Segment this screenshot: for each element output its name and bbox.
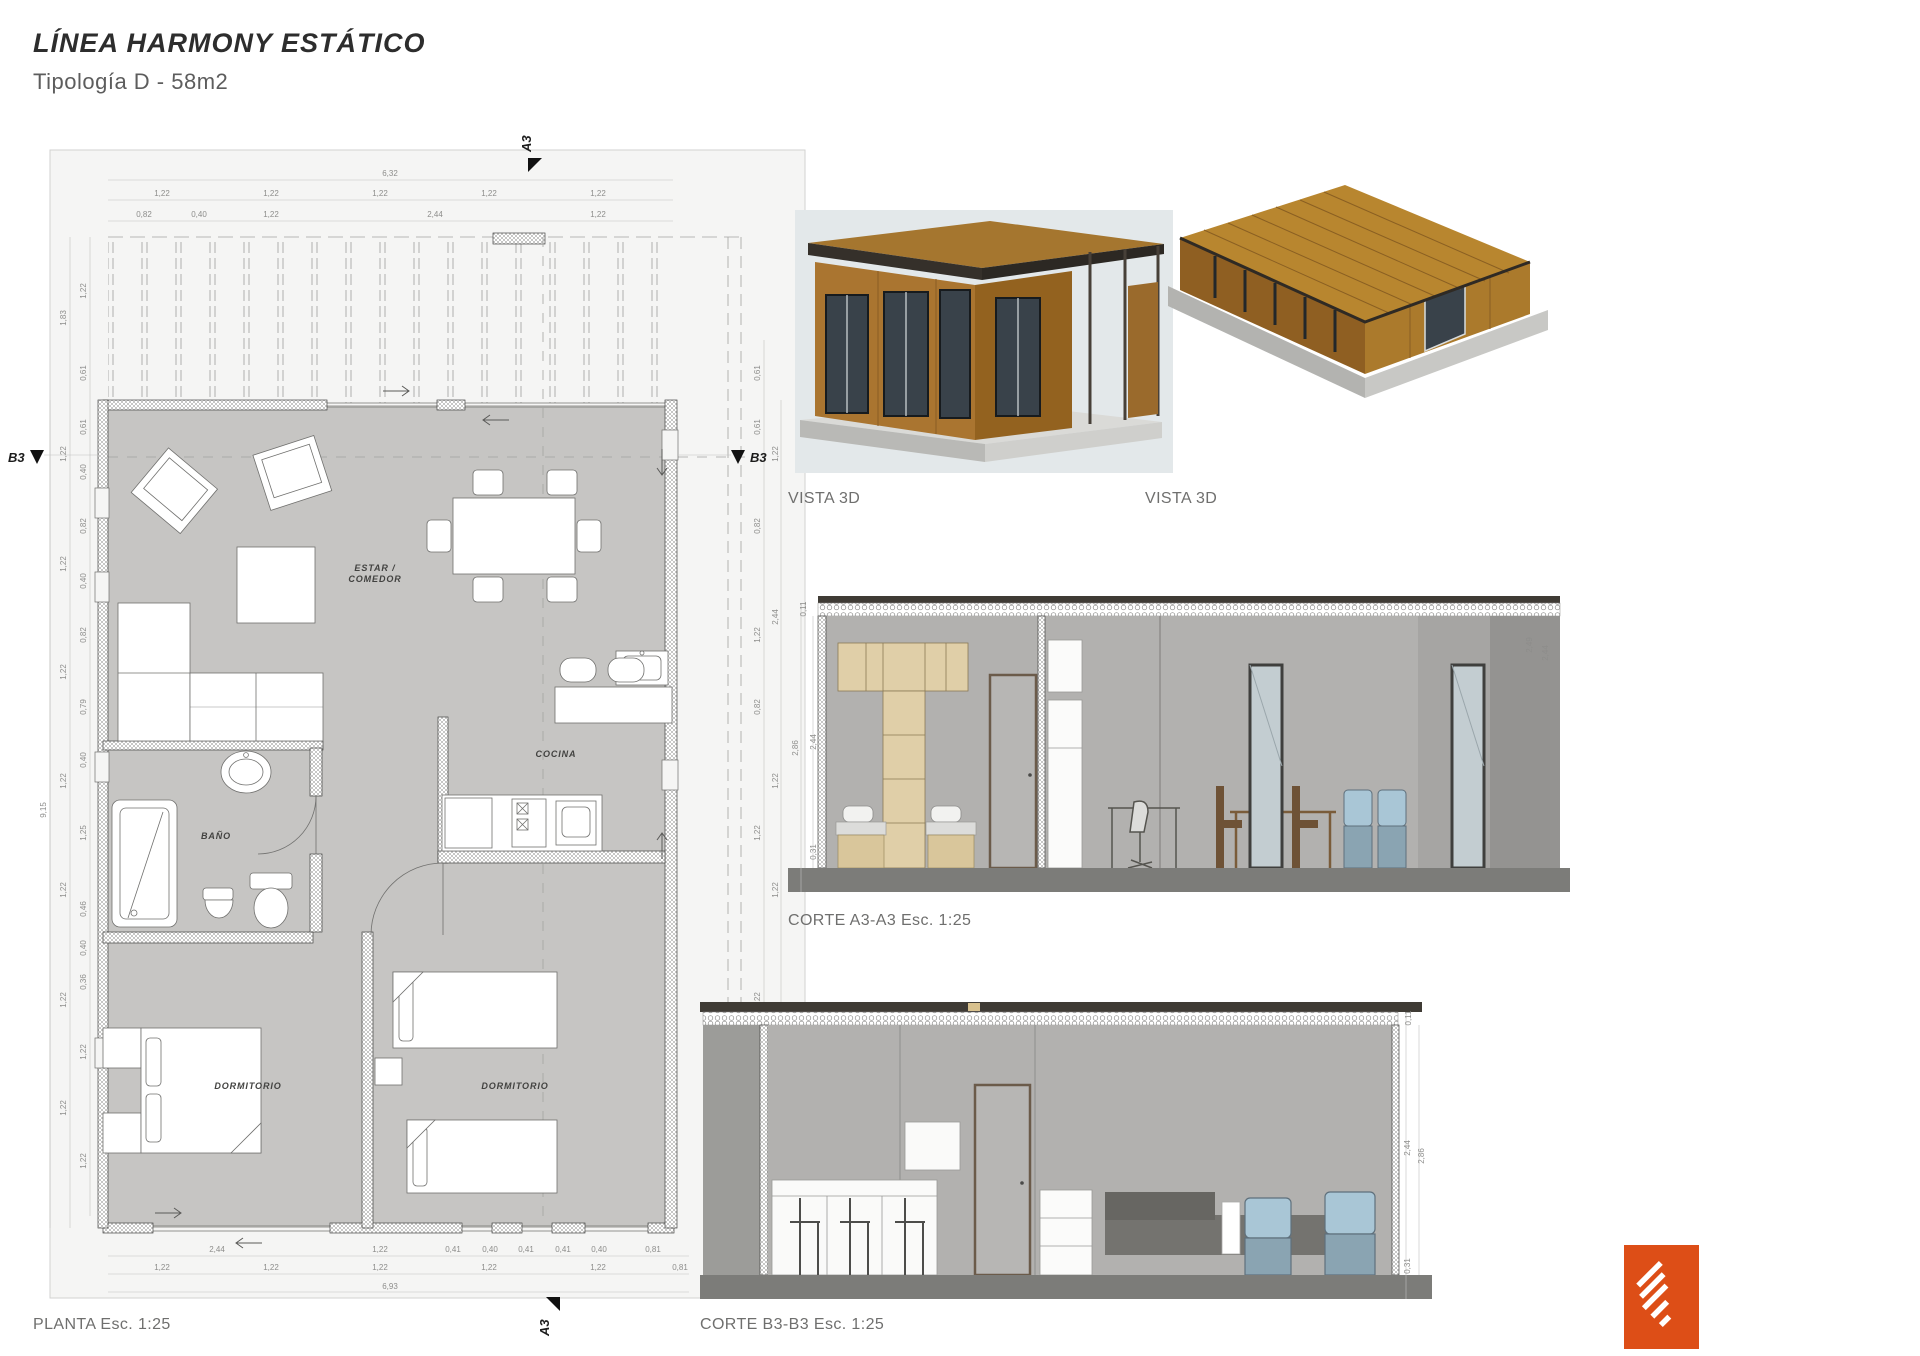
dim-label: 0,31 — [1403, 1258, 1412, 1274]
dim-label: 1,22 — [372, 1245, 388, 1254]
dim-label: 2,44 — [1541, 645, 1550, 661]
breakfast-bar — [555, 651, 672, 723]
dim-label: 0,36 — [79, 974, 88, 990]
bathroom-sink — [221, 751, 271, 793]
dim-label: 1,22 — [59, 1100, 68, 1116]
dim-label: 0,40 — [79, 464, 88, 480]
dim-label: 2,44 — [427, 210, 443, 219]
floor-slab — [700, 1275, 1432, 1299]
dim-label: 0,40 — [79, 573, 88, 589]
dim-label: 1,22 — [59, 446, 68, 462]
dim-label: 1,22 — [481, 1263, 497, 1272]
dim-label: 1,22 — [753, 627, 762, 643]
drawing-sheet-page: LÍNEA HARMONY ESTÁTICO Tipología D - 58m… — [0, 0, 1920, 1356]
logo-background — [1624, 1245, 1699, 1349]
floor-plan: ESTAR / COMEDOR COCINA BAÑO DORMITORIO D… — [8, 135, 805, 1337]
roof-slab — [700, 1002, 1422, 1012]
dim-label: 0,61 — [79, 365, 88, 381]
section-marker-a3-bottom: A3 — [537, 1297, 560, 1337]
dim-label: 1,22 — [372, 189, 388, 198]
dim-label: 1,25 — [79, 825, 88, 841]
dim-label: 2,86 — [791, 740, 800, 756]
dim-label: 1,22 — [79, 1153, 88, 1169]
drawing-canvas: ESTAR / COMEDOR COCINA BAÑO DORMITORIO D… — [0, 0, 1920, 1356]
dim-label: 0,61 — [753, 365, 762, 381]
dim-label: 2,86 — [1417, 1148, 1426, 1164]
room-label-bed1: DORMITORIO — [214, 1081, 281, 1091]
section-b3: 0,11 2,44 2,86 0,31 CORTE B3-B3 Esc. 1:2… — [700, 1002, 1432, 1333]
dim-label: 0,81 — [672, 1263, 688, 1272]
door-in-section — [975, 1085, 1030, 1275]
dim-label: 0,79 — [79, 699, 88, 715]
dim-label: 0,40 — [191, 210, 207, 219]
room-label-kitchen: COCINA — [536, 749, 577, 759]
single-bed — [393, 972, 557, 1048]
vista-3d-exterior: VISTA 3D — [788, 210, 1173, 507]
dim-label: 0,61 — [79, 419, 88, 435]
dim-label: 0,40 — [482, 1245, 498, 1254]
dim-label: 2,44 — [1403, 1140, 1412, 1156]
porch-wall — [703, 1025, 760, 1275]
door-in-section — [990, 675, 1036, 868]
roof-insulation — [818, 603, 1560, 616]
dim-label: 1,22 — [59, 664, 68, 680]
section-a3: 0,11 2,44 2,86 0,31 2,49 2,44 CORTE A3-A… — [788, 596, 1570, 929]
dim-label: 1,22 — [59, 882, 68, 898]
dim-label: 1,22 — [79, 1044, 88, 1060]
dim-label: 1,22 — [771, 446, 780, 462]
floor-slab — [788, 868, 1570, 892]
dim-label: 1,22 — [590, 210, 606, 219]
dim-label: 0,40 — [591, 1245, 607, 1254]
dim-label: 0,40 — [79, 940, 88, 956]
dim-label: 0,31 — [809, 844, 818, 860]
dim-label: 0,40 — [79, 752, 88, 768]
dim-label: 0,61 — [753, 419, 762, 435]
dim-label: 0,11 — [1404, 1010, 1413, 1026]
room-label-bed2: DORMITORIO — [481, 1081, 548, 1091]
section-arrow-icon — [546, 1297, 560, 1311]
dim-label: 1,22 — [771, 773, 780, 789]
dim-label: 0,82 — [753, 699, 762, 715]
dim-label: 2,44 — [209, 1245, 225, 1254]
dim-label: 1,22 — [79, 283, 88, 299]
vista1-caption: VISTA 3D — [788, 490, 860, 507]
section-b3-caption: CORTE B3-B3 Esc. 1:25 — [700, 1316, 884, 1333]
dim-label: 1,22 — [590, 189, 606, 198]
plan-caption: PLANTA Esc. 1:25 — [33, 1316, 171, 1333]
vista2-caption: VISTA 3D — [1145, 490, 1217, 507]
dim-label: 2,49 — [1525, 637, 1534, 653]
dim-label: 1,22 — [154, 1263, 170, 1272]
dim-label: 1,22 — [154, 189, 170, 198]
dim-label: 0,41 — [555, 1245, 571, 1254]
dim-label: 0,41 — [445, 1245, 461, 1254]
dim-label: 0,82 — [79, 518, 88, 534]
dim-label: 0,82 — [79, 627, 88, 643]
room-label-bath: BAÑO — [201, 831, 231, 841]
bathtub — [112, 800, 177, 927]
dim-label: 1,22 — [372, 1263, 388, 1272]
marker-label: A3 — [519, 135, 534, 153]
dim-label: 0,11 — [799, 601, 808, 617]
marker-label: B3 — [750, 450, 767, 465]
pergola-wall-panel — [1128, 282, 1158, 418]
coffee-table — [237, 547, 315, 623]
dim-label: 1,22 — [59, 556, 68, 572]
dim-label: 9,15 — [39, 802, 48, 818]
roof-insulation — [703, 1012, 1398, 1025]
glass-door — [826, 290, 970, 418]
dim-label: 6,93 — [382, 1282, 398, 1291]
dim-label: 1,22 — [59, 992, 68, 1008]
dim-label: 1,22 — [481, 189, 497, 198]
dim-label: 0,82 — [136, 210, 152, 219]
dim-label: 0,46 — [79, 901, 88, 917]
logo — [1624, 1245, 1699, 1349]
dim-label: 1,83 — [59, 310, 68, 326]
dim-label: 6,32 — [382, 169, 398, 178]
dim-label: 0,82 — [753, 518, 762, 534]
section-a3-caption: CORTE A3-A3 Esc. 1:25 — [788, 912, 971, 929]
marker-label: B3 — [8, 450, 25, 465]
dim-label: 1,22 — [263, 189, 279, 198]
dim-label: 2,44 — [771, 609, 780, 625]
vista-3d-aerial: VISTA 3D — [1145, 185, 1548, 507]
roof-slab — [818, 596, 1560, 603]
fridge — [1048, 640, 1082, 868]
dim-label: 2,44 — [809, 734, 818, 750]
dim-label: 1,22 — [59, 773, 68, 789]
room-label-living: ESTAR / — [354, 563, 396, 573]
dim-label: 0,41 — [518, 1245, 534, 1254]
section-arrow-icon — [30, 450, 44, 464]
room-label-living2: COMEDOR — [348, 574, 401, 584]
dim-label: 1,22 — [263, 1263, 279, 1272]
dresser — [1040, 1190, 1092, 1275]
dim-label: 1,22 — [263, 210, 279, 219]
kitchen-counter — [442, 795, 602, 851]
dim-label: 1,22 — [590, 1263, 606, 1272]
dim-label: 0,81 — [645, 1245, 661, 1254]
dim-label: 1,22 — [771, 882, 780, 898]
dim-label: 1,22 — [753, 825, 762, 841]
marker-label: A3 — [537, 1319, 552, 1337]
